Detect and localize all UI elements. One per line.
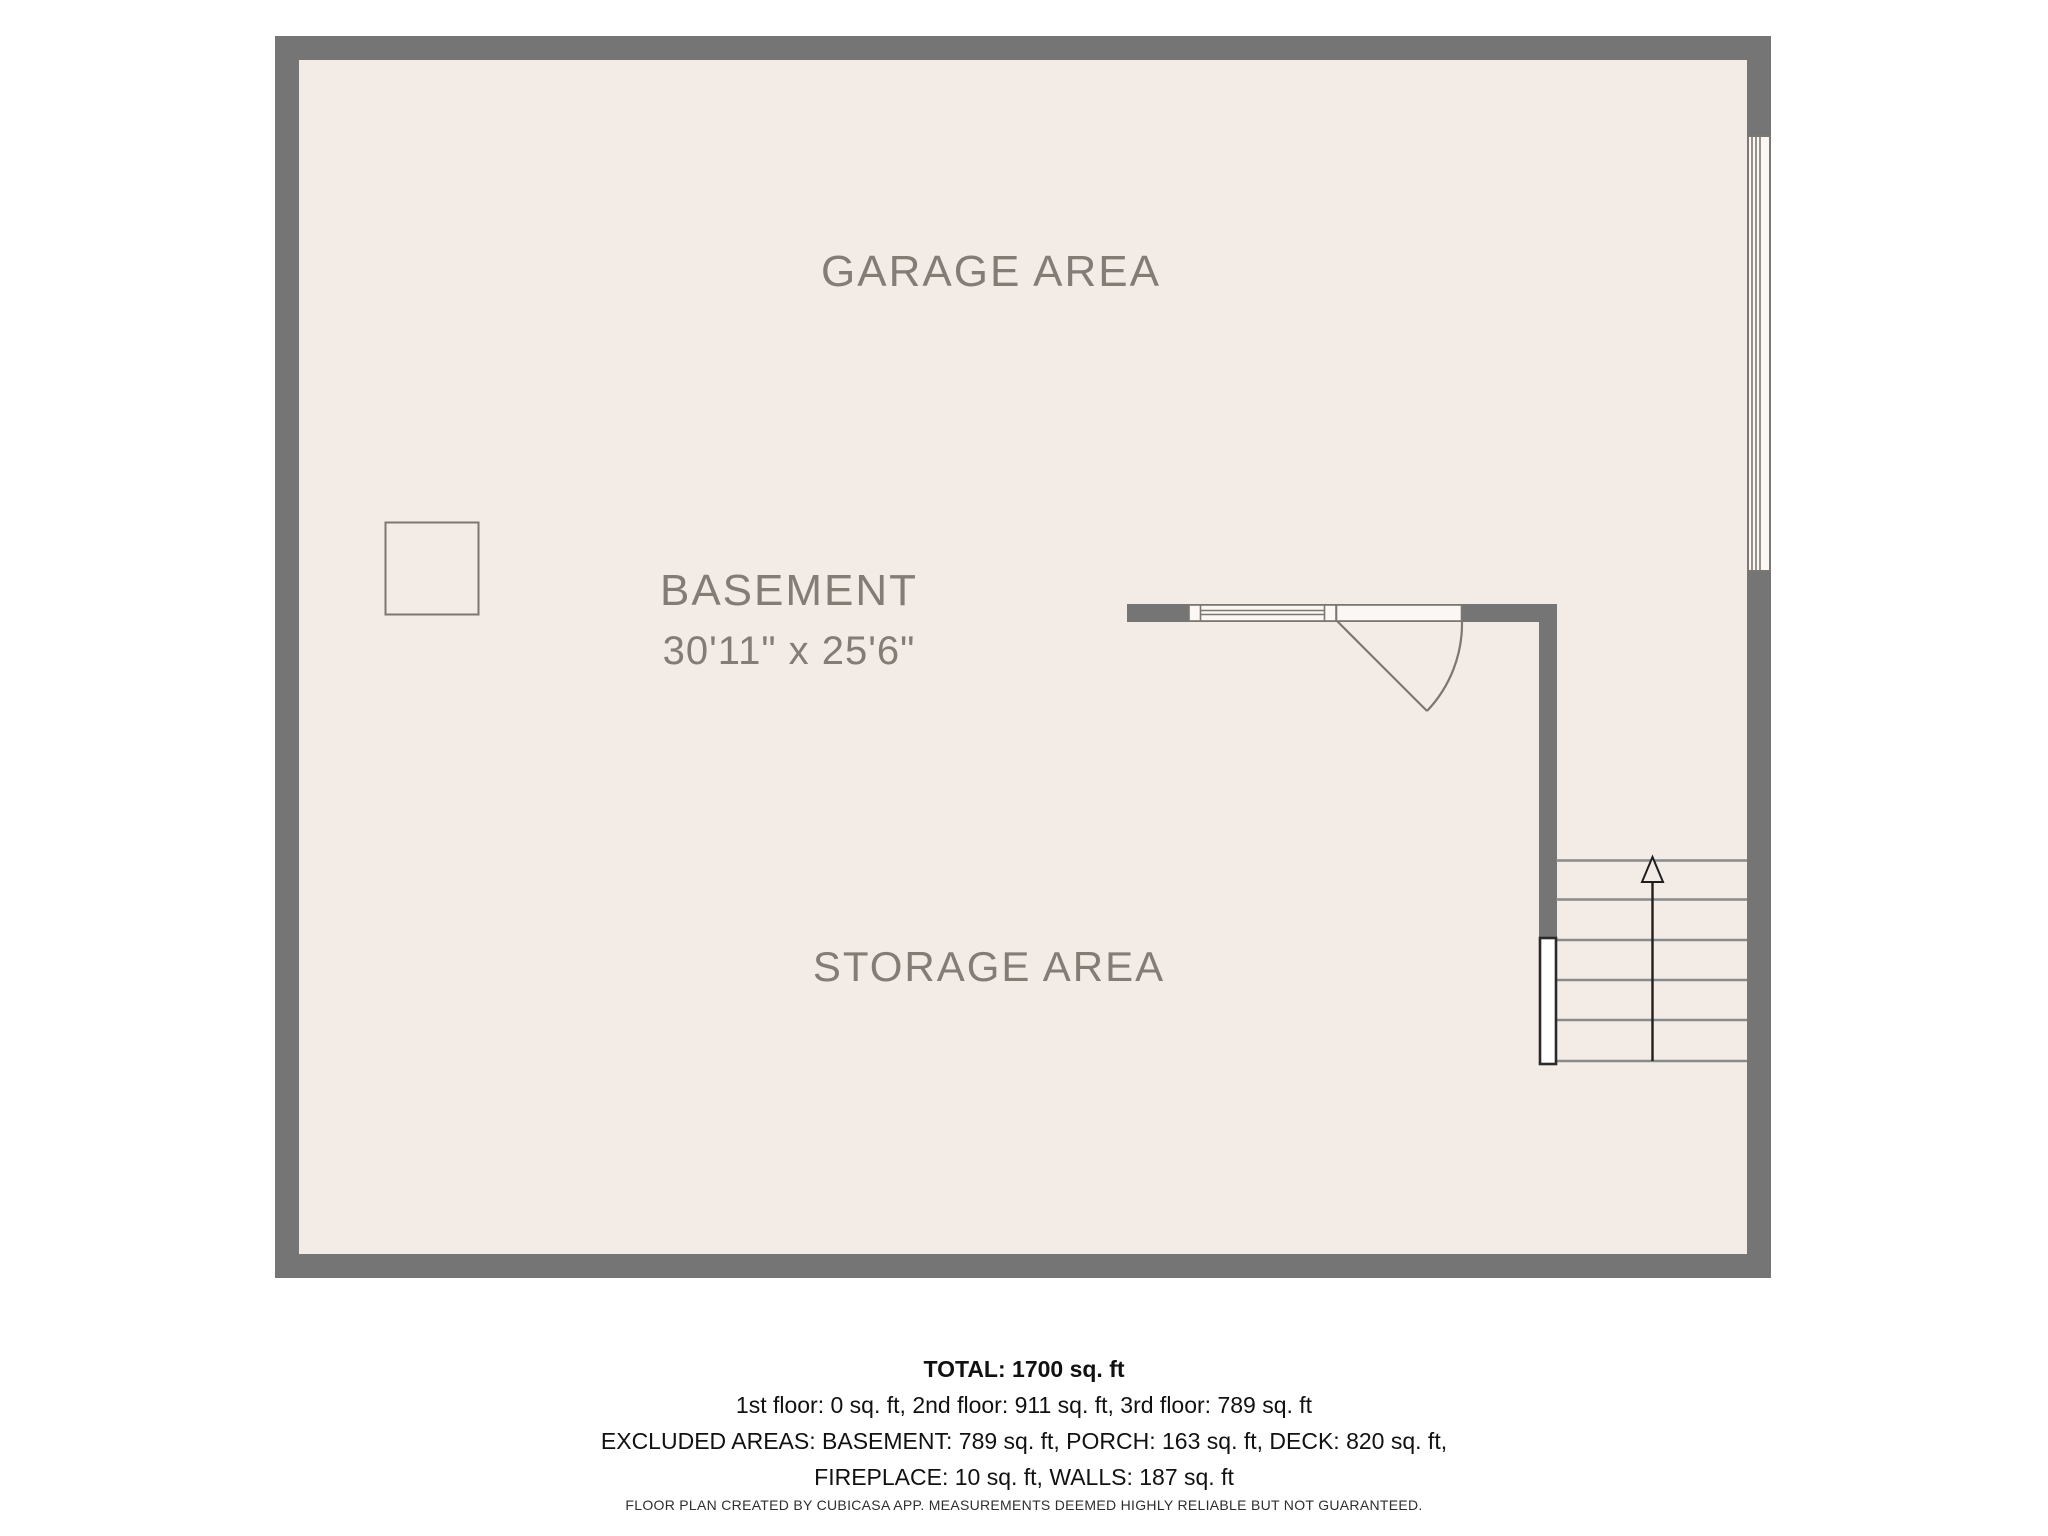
floor-plan-page: { "colors": { "wall": "#757575", "floor"… bbox=[0, 0, 2048, 1536]
room-dimensions-basement: 30'11" x 25'6" bbox=[663, 629, 916, 674]
area-summary: TOTAL: 1700 sq. ft 1st floor: 0 sq. ft, … bbox=[0, 1351, 2048, 1495]
room-label-storage: STORAGE AREA bbox=[813, 943, 1165, 991]
total-area-text: TOTAL: 1700 sq. ft bbox=[0, 1351, 2048, 1387]
wall-interior-vertical bbox=[1539, 604, 1557, 937]
stair-railing bbox=[1540, 938, 1556, 1064]
window-frame bbox=[1189, 605, 1336, 621]
window-right-wall bbox=[1748, 136, 1770, 571]
room-label-garage: GARAGE AREA bbox=[821, 247, 1161, 297]
room-label-basement: BASEMENT bbox=[660, 566, 918, 616]
excluded-areas-text-1: EXCLUDED AREAS: BASEMENT: 789 sq. ft, PO… bbox=[0, 1423, 2048, 1459]
excluded-areas-text-2: FIREPLACE: 10 sq. ft, WALLS: 187 sq. ft bbox=[0, 1459, 2048, 1495]
floor-areas-text: 1st floor: 0 sq. ft, 2nd floor: 911 sq. … bbox=[0, 1387, 2048, 1423]
floor-plan-drawing bbox=[0, 0, 2048, 1536]
wall-bottom bbox=[275, 1254, 1771, 1278]
floor-area bbox=[299, 60, 1747, 1254]
disclaimer-text: FLOOR PLAN CREATED BY CUBICASA APP. MEAS… bbox=[0, 1497, 2048, 1513]
wall-left bbox=[275, 36, 299, 1278]
wall-top bbox=[275, 36, 1771, 60]
window-interior-wall bbox=[1189, 605, 1336, 621]
door-opening bbox=[1337, 605, 1462, 621]
